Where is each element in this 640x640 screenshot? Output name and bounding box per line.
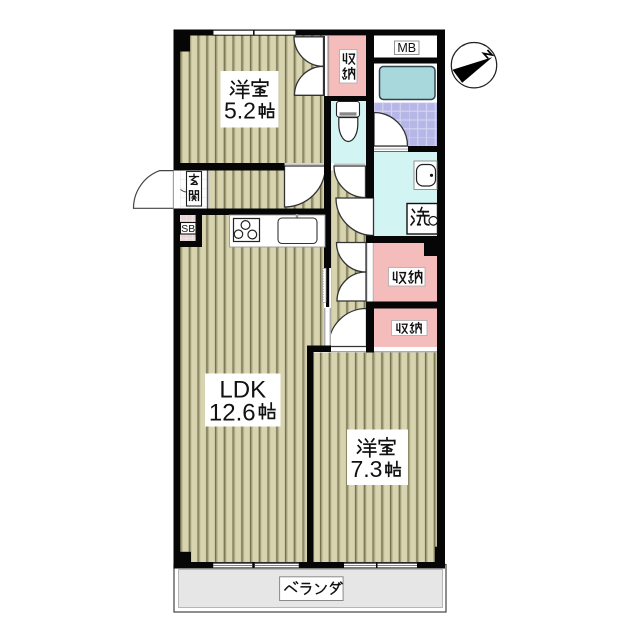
svg-text:SB: SB: [181, 223, 195, 235]
svg-text:MB: MB: [397, 41, 416, 55]
svg-text:5.2: 5.2: [224, 97, 256, 123]
svg-text:12.6: 12.6: [209, 400, 256, 427]
svg-text:7.3: 7.3: [351, 456, 383, 482]
